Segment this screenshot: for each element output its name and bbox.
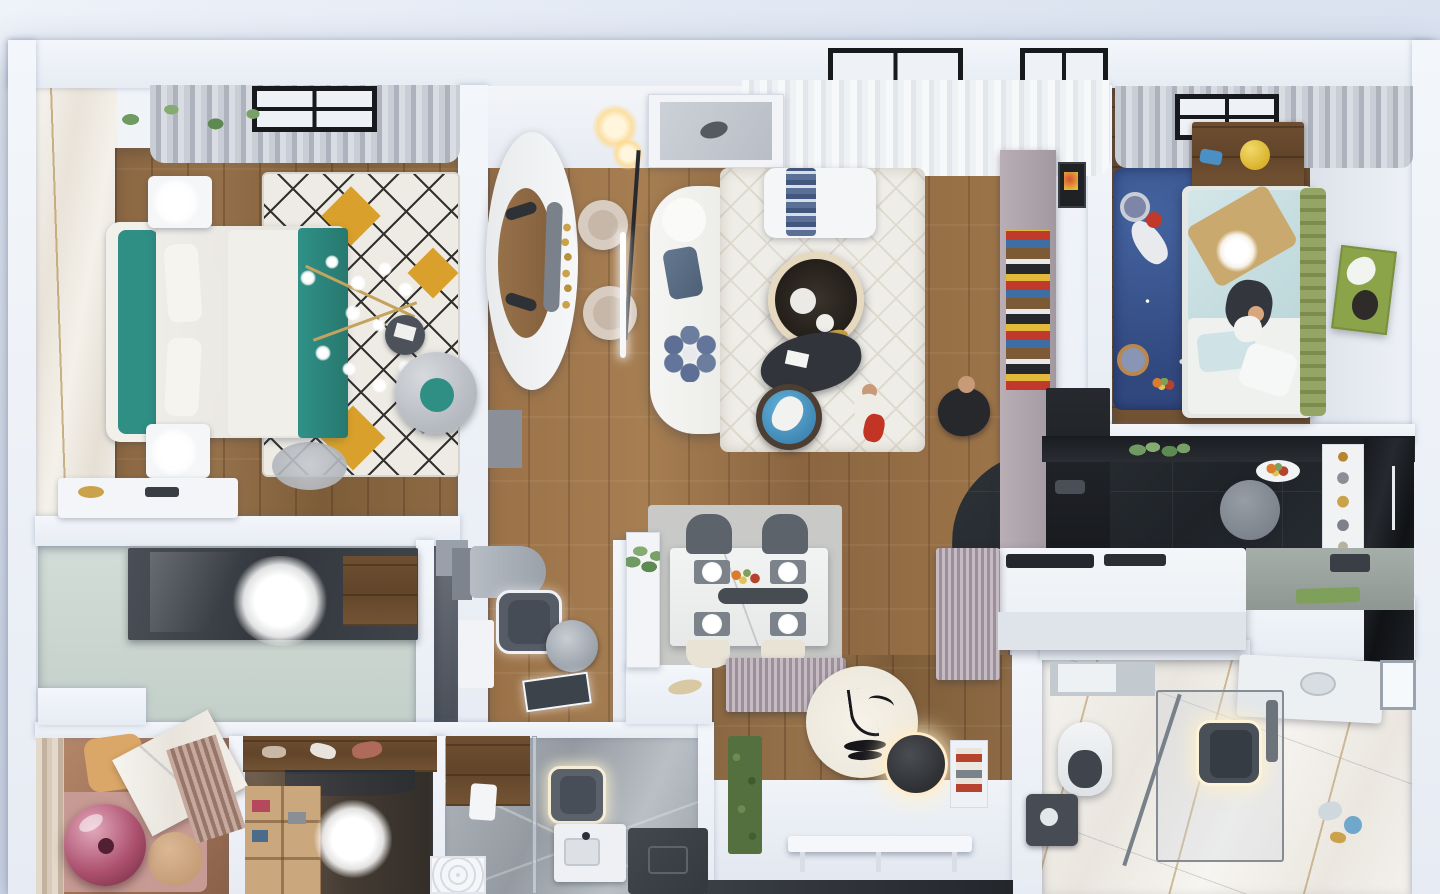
window-daybed xyxy=(764,168,876,238)
living-left-console xyxy=(488,410,522,468)
bath2-towel xyxy=(469,783,497,821)
bath2-drain-frame xyxy=(648,846,688,874)
person-standing-head xyxy=(958,376,975,393)
master-bedroom-marble-wall xyxy=(35,85,117,518)
master-fur-mat xyxy=(272,442,347,490)
daybed-blue-throw xyxy=(786,168,816,236)
dinner-plate xyxy=(778,562,798,582)
kids-floor-toys xyxy=(1150,378,1176,390)
wall-top xyxy=(8,40,1432,88)
counter-appliance xyxy=(1330,554,1370,572)
wall-left xyxy=(8,40,36,894)
bath1-toilet-tank xyxy=(452,548,472,600)
table-runner xyxy=(718,588,808,604)
table-lamp-glow-bottom xyxy=(150,428,198,476)
floor-lamp-led-tube xyxy=(620,232,626,358)
dining-chair-cream-1 xyxy=(686,640,730,668)
dressing-pendant-lamp xyxy=(232,556,328,646)
chandelier-bulb xyxy=(345,305,361,321)
dinner-plate xyxy=(702,562,722,582)
entry-door-mat xyxy=(705,880,1013,894)
floorplan-stage xyxy=(0,0,1440,894)
kitchen-greenery xyxy=(1126,442,1190,458)
gold-spiral-decor xyxy=(558,222,576,314)
bath2-basin xyxy=(564,838,600,866)
cubby-item-grey xyxy=(288,812,306,824)
chandelier-bulb xyxy=(325,255,339,269)
chandelier-bulb xyxy=(378,262,392,276)
dining-chair-dark-2 xyxy=(762,514,808,554)
bath1-shower-inner xyxy=(508,600,550,644)
cubby-item-blue xyxy=(252,830,268,842)
wall-foyer-bathroom xyxy=(1012,636,1042,894)
cubby-item-red xyxy=(252,800,270,812)
master-plant-shelf xyxy=(100,92,270,147)
dresser-decor-dark xyxy=(145,487,179,497)
island-sink-strip xyxy=(1104,554,1166,566)
foyer-led-mirror xyxy=(884,732,948,796)
foyer-shelf-decor xyxy=(956,748,982,792)
master-pillow-1 xyxy=(163,243,202,323)
cutting-board-green xyxy=(1296,587,1360,604)
kids-headboard-green xyxy=(1300,188,1326,416)
master-dresser xyxy=(58,478,238,518)
chandelier-bulb xyxy=(350,275,366,291)
bath3-sink xyxy=(1300,672,1336,696)
sofa-flower-pillow xyxy=(662,326,718,382)
bath1-cabinet xyxy=(458,620,494,688)
island-front-face xyxy=(998,612,1246,650)
yellow-ball-toy xyxy=(1240,140,1270,170)
master-pillow-2 xyxy=(164,337,202,417)
wardrobe-wood-section xyxy=(343,556,417,626)
dressing-step xyxy=(38,688,146,725)
bath3-towel-rail xyxy=(1266,700,1278,762)
island-cooktop xyxy=(1006,554,1094,568)
etagere-plants xyxy=(626,532,660,592)
foyer-console-bench xyxy=(788,836,972,852)
wall-dining-step xyxy=(626,664,712,724)
table-lamp-glow-top xyxy=(152,178,200,226)
pantry-shelf-jars xyxy=(1322,444,1364,564)
bath2-faucet xyxy=(582,832,590,840)
chandelier-bulb xyxy=(342,362,356,376)
chandelier-bulb xyxy=(372,378,387,393)
chandelier-bulb xyxy=(315,345,331,361)
bench-leg xyxy=(952,852,957,872)
chandelier-bulb xyxy=(398,282,413,297)
bath3-toilet-seat xyxy=(1068,750,1102,788)
bath3-basin-bowl xyxy=(1040,808,1058,826)
entry-egg-pendant-lamp xyxy=(314,800,392,878)
pink-lamp-center xyxy=(98,838,114,854)
bath2-mirror-inner xyxy=(560,776,596,814)
master-duvet xyxy=(228,230,306,436)
kids-lantern-lamp xyxy=(1216,230,1258,272)
bench-leg xyxy=(800,852,805,872)
bath3-cabinet-door xyxy=(1058,664,1116,692)
coffee-table-plate-2 xyxy=(816,314,834,332)
dining-chair-dark-1 xyxy=(686,514,732,554)
sofa-round-cushion xyxy=(662,198,706,242)
kitchen-food-dots xyxy=(1264,463,1290,477)
rug-planet-saturn xyxy=(1117,344,1149,376)
chandelier-bulb xyxy=(300,270,316,286)
kitchen-round-table xyxy=(1220,480,1280,540)
chandelier-bulb xyxy=(372,318,386,332)
bath3-toy-blue xyxy=(1344,816,1362,834)
lounge-chair-1-seat xyxy=(588,210,618,240)
shoes-pair-beige xyxy=(262,746,286,758)
media-desk-dark xyxy=(1046,388,1110,566)
wall-under-master xyxy=(35,516,460,546)
lounge-curtain xyxy=(36,738,64,894)
dresser-decor-gold xyxy=(78,486,104,498)
wall-bath-left xyxy=(416,540,434,728)
master-teal-runner xyxy=(298,228,348,438)
bath3-window xyxy=(1380,660,1416,710)
master-skylight-window xyxy=(252,86,377,132)
wall-right xyxy=(1412,40,1440,894)
dinner-plate xyxy=(702,614,722,634)
master-pouf-teal-center xyxy=(420,378,454,412)
bath1-basin xyxy=(546,620,598,672)
bath3-mirror-dark xyxy=(1210,730,1252,778)
lounge-round-ottoman xyxy=(148,832,202,886)
dinner-plate xyxy=(778,614,798,634)
island-ribbed-panel xyxy=(936,548,1000,680)
table-food-platter xyxy=(725,568,765,586)
coffee-table-plate-1 xyxy=(790,288,816,314)
desk-accessory xyxy=(1055,480,1085,494)
master-headboard xyxy=(118,230,158,434)
bath2-glass-partition xyxy=(532,736,537,894)
bath2-spiral-mat xyxy=(430,856,486,894)
master-bolster xyxy=(204,268,222,396)
cabinet-handle xyxy=(1392,466,1395,530)
media-shelf-books xyxy=(1006,230,1050,390)
foyer-moss-wall xyxy=(728,736,762,854)
bench-leg xyxy=(876,852,881,872)
poster-artwork xyxy=(1064,172,1078,190)
